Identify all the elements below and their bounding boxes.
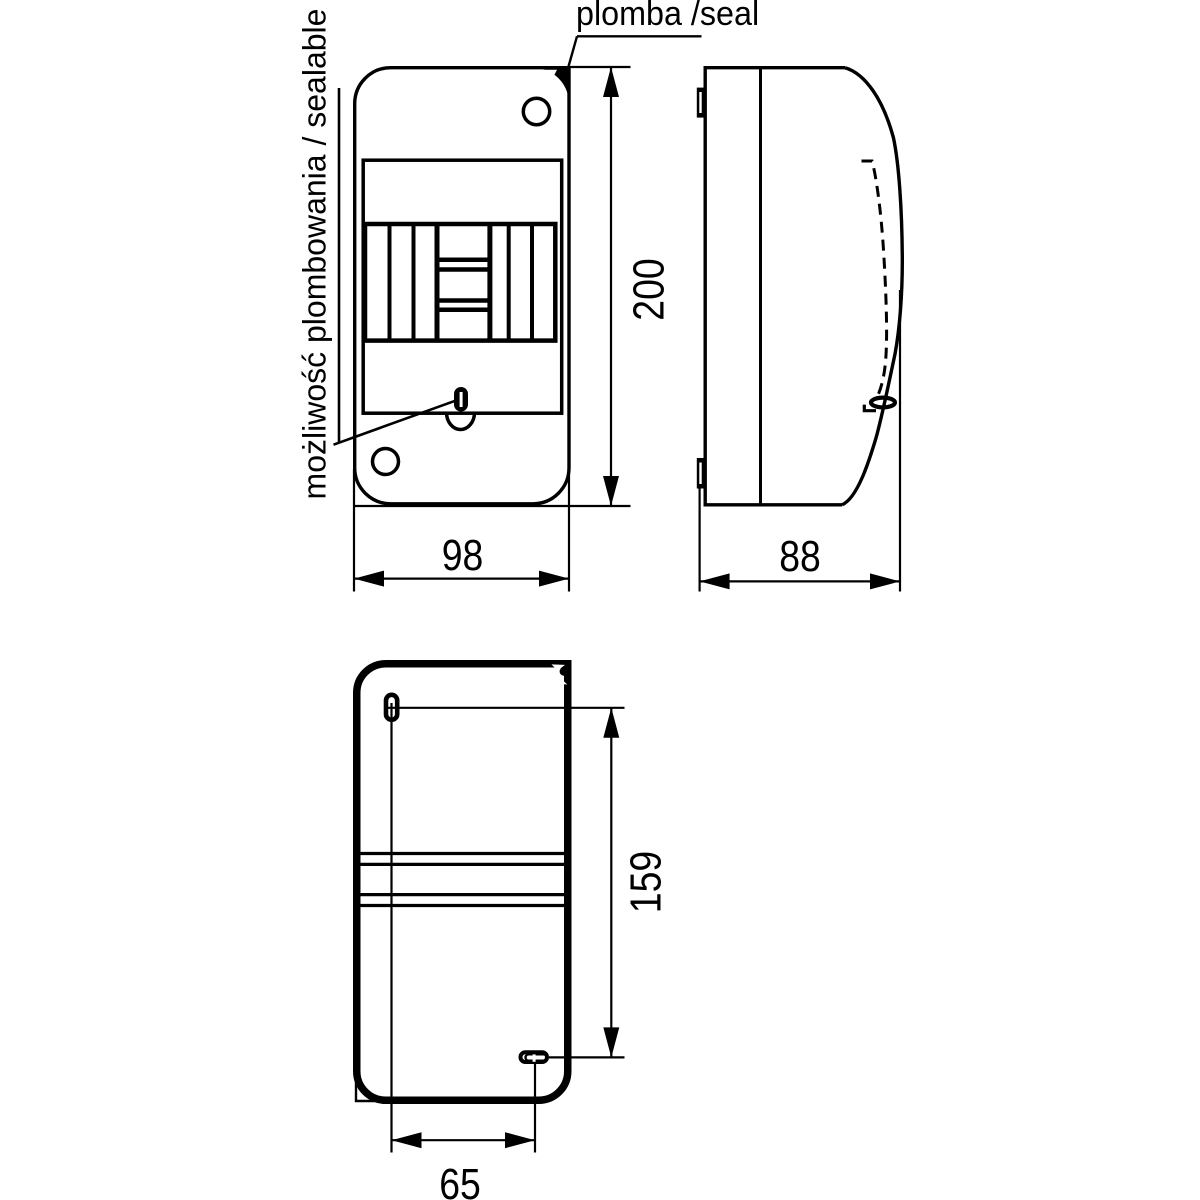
svg-text:200: 200 — [624, 258, 674, 320]
svg-text:88: 88 — [779, 531, 821, 581]
svg-text:98: 98 — [442, 530, 484, 580]
svg-text:plomba /seal: plomba /seal — [576, 0, 759, 33]
svg-text:możliwość plombowania / sealab: możliwość plombowania / sealable — [297, 9, 333, 500]
svg-text:65: 65 — [439, 1159, 481, 1200]
svg-text:159: 159 — [621, 851, 671, 913]
